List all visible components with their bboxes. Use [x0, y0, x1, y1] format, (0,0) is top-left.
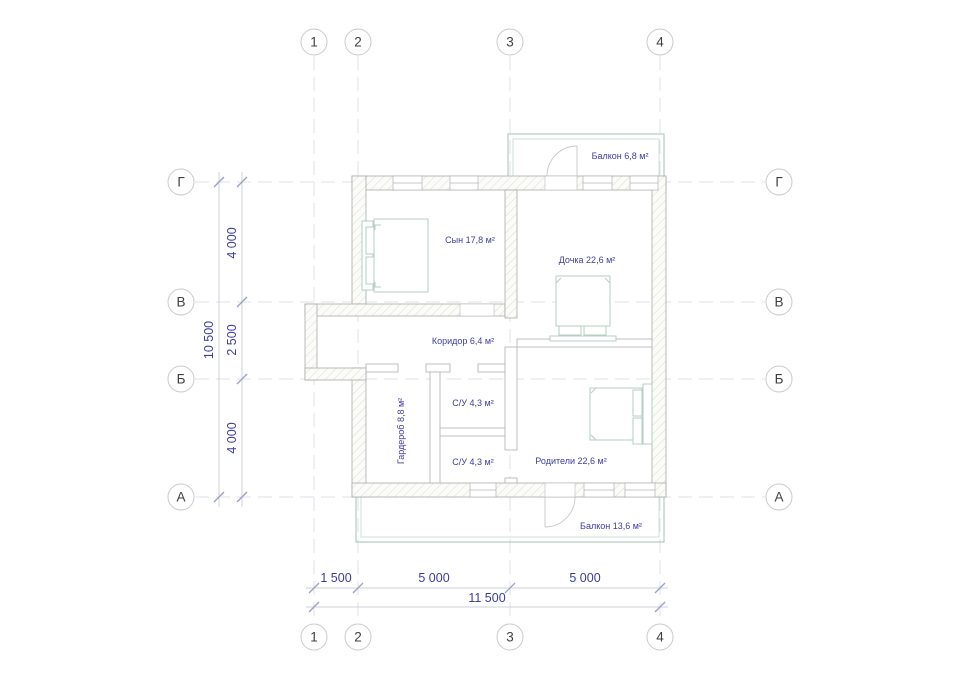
axis-label-col2-top: 2: [354, 35, 362, 50]
room-label-son: Сын 17,8 м²: [445, 235, 495, 245]
axis-bubble-col3-top: 3: [497, 29, 523, 55]
axis-label-rowG-left: Г: [177, 175, 185, 190]
axis-bubble-rowV-right: В: [766, 289, 792, 315]
window-top-4: [630, 176, 658, 190]
wall-son-daughter: [505, 190, 517, 318]
window-top-1: [393, 176, 422, 190]
axis-bubble-rowG-right: Г: [766, 169, 792, 195]
axis-label-rowV-right: В: [774, 295, 783, 310]
room-label-parents: Родители 22,6 м²: [535, 456, 606, 466]
room-label-balcony-top: Балкон 6,8 м²: [592, 151, 649, 161]
door-opening-balcony-top: [545, 176, 577, 190]
window-top-3: [583, 176, 612, 190]
axis-bubble-col1-bottom: 1: [301, 624, 327, 650]
bed-son: [362, 219, 428, 292]
axis-label-col2-bottom: 2: [354, 630, 362, 645]
partition-corridor-3: [478, 364, 505, 372]
door-arc-balcony-bottom: [545, 497, 575, 527]
partition-between-wc: [440, 428, 505, 436]
partition-corridor-1: [366, 364, 398, 372]
dim-bottom-segment-1: 1 500: [320, 571, 351, 585]
axis-bubble-col1-top: 1: [301, 29, 327, 55]
room-label-wardrobe: Гардероб 8,8 м²: [396, 398, 406, 464]
axis-label-col1-bottom: 1: [310, 630, 318, 645]
door-opening-balcony-bottom: [545, 483, 575, 497]
room-label-wc-top: С/У 4,3 м²: [452, 398, 493, 408]
bed-parents: [590, 384, 652, 444]
floor-plan-canvas: 1 500 5 000 5 000 11 500 4 000 2 500 4 0…: [0, 0, 960, 679]
axis-label-rowB-left: Б: [177, 372, 186, 387]
axis-bubble-col2-top: 2: [345, 29, 371, 55]
dim-bottom-total: 11 500: [468, 591, 505, 605]
dim-left-total: 10 500: [202, 321, 216, 359]
axis-label-col3-bottom: 3: [506, 630, 514, 645]
dim-bottom-segment-3: 5 000: [569, 571, 600, 585]
axis-bubble-col4-top: 4: [647, 29, 673, 55]
axis-label-col4-bottom: 4: [656, 630, 664, 645]
wall-exterior-bottom: [352, 483, 666, 497]
dim-left-segment-1: 4 000: [225, 227, 239, 258]
axis-bubble-rowA-right: А: [766, 484, 792, 510]
axis-label-rowA-left: А: [176, 490, 185, 505]
axis-label-rowG-right: Г: [775, 175, 783, 190]
door-arc-balcony-top: [547, 146, 577, 176]
axis-bubble-col3-bottom: 3: [497, 624, 523, 650]
axis-bubble-rowB-right: Б: [766, 366, 792, 392]
wall-exterior-right: [652, 176, 666, 497]
dim-bottom-segment-2: 5 000: [418, 571, 449, 585]
room-label-corridor: Коридор 6,4 м²: [432, 336, 494, 346]
room-label-wc-bottom: С/У 4,3 м²: [452, 457, 493, 467]
dim-left-segment-2: 2 500: [225, 324, 239, 355]
axis-bubble-rowG-left: Г: [168, 169, 194, 195]
bed-daughter: [550, 276, 616, 341]
window-top-2: [450, 176, 478, 190]
wall-exterior-left-lower: [352, 368, 366, 497]
axis-bubble-col4-bottom: 4: [647, 624, 673, 650]
axis-label-rowA-right: А: [774, 490, 783, 505]
window-bottom-2: [584, 483, 614, 497]
axis-label-rowB-right: Б: [775, 372, 784, 387]
axis-label-col3-top: 3: [506, 35, 514, 50]
partition-wc-parents-lower: [505, 478, 517, 483]
window-bottom-1: [470, 483, 496, 497]
partition-wardrobe-wc: [430, 372, 440, 483]
axis-bubble-col2-bottom: 2: [345, 624, 371, 650]
room-label-balcony-bottom: Балкон 13,6 м²: [580, 521, 642, 531]
partition-wc-parents-upper: [505, 347, 517, 450]
axis-bubble-rowA-left: А: [168, 484, 194, 510]
axis-label-col1-top: 1: [310, 35, 318, 50]
room-label-daughter: Дочка 22,6 м²: [559, 255, 616, 265]
dim-left-segment-3: 4 000: [225, 422, 239, 453]
door-opening-son: [460, 304, 494, 316]
window-bottom-3: [625, 483, 655, 497]
axis-bubble-rowB-left: Б: [168, 366, 194, 392]
axis-label-rowV-left: В: [176, 295, 185, 310]
axis-label-col4-top: 4: [656, 35, 664, 50]
partition-corridor-2: [426, 364, 450, 372]
wall-vestibule-bottom: [305, 368, 366, 380]
axis-bubble-rowV-left: В: [168, 289, 194, 315]
